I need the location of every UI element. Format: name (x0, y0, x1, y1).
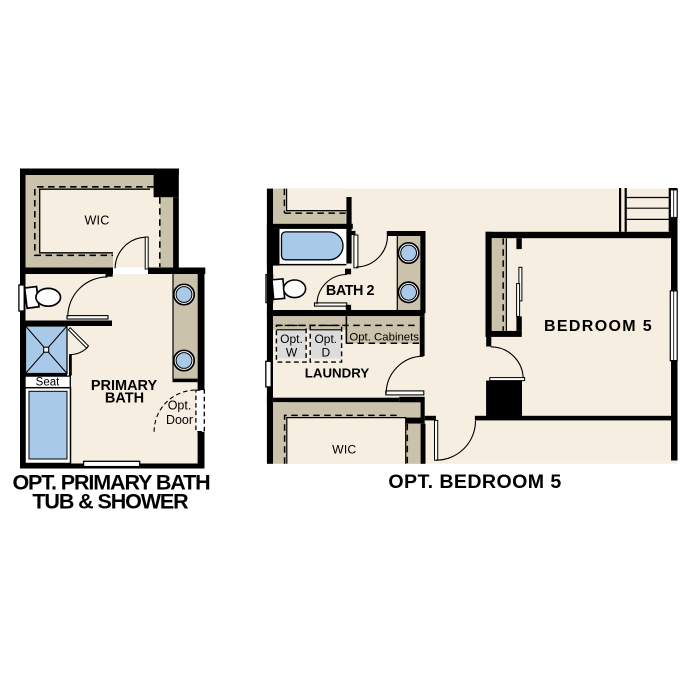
svg-text:Opt.: Opt. (280, 332, 303, 346)
svg-text:LAUNDRY: LAUNDRY (305, 366, 370, 381)
svg-text:TUB & SHOWER: TUB & SHOWER (32, 489, 189, 513)
svg-text:Seat: Seat (36, 377, 60, 389)
svg-text:OPT. BEDROOM 5: OPT. BEDROOM 5 (388, 471, 561, 493)
svg-text:Opt. Cabinets: Opt. Cabinets (349, 332, 419, 344)
svg-text:WIC: WIC (332, 443, 356, 457)
svg-text:D: D (321, 345, 330, 359)
svg-text:WIC: WIC (84, 214, 109, 228)
svg-text:BEDROOM 5: BEDROOM 5 (544, 318, 653, 335)
svg-text:Opt.: Opt. (314, 332, 337, 346)
svg-text:BATH 2: BATH 2 (326, 283, 375, 299)
svg-text:BATH: BATH (105, 391, 144, 407)
svg-text:Opt.: Opt. (168, 399, 192, 413)
svg-text:W: W (286, 345, 298, 359)
svg-text:Door: Door (166, 413, 193, 427)
